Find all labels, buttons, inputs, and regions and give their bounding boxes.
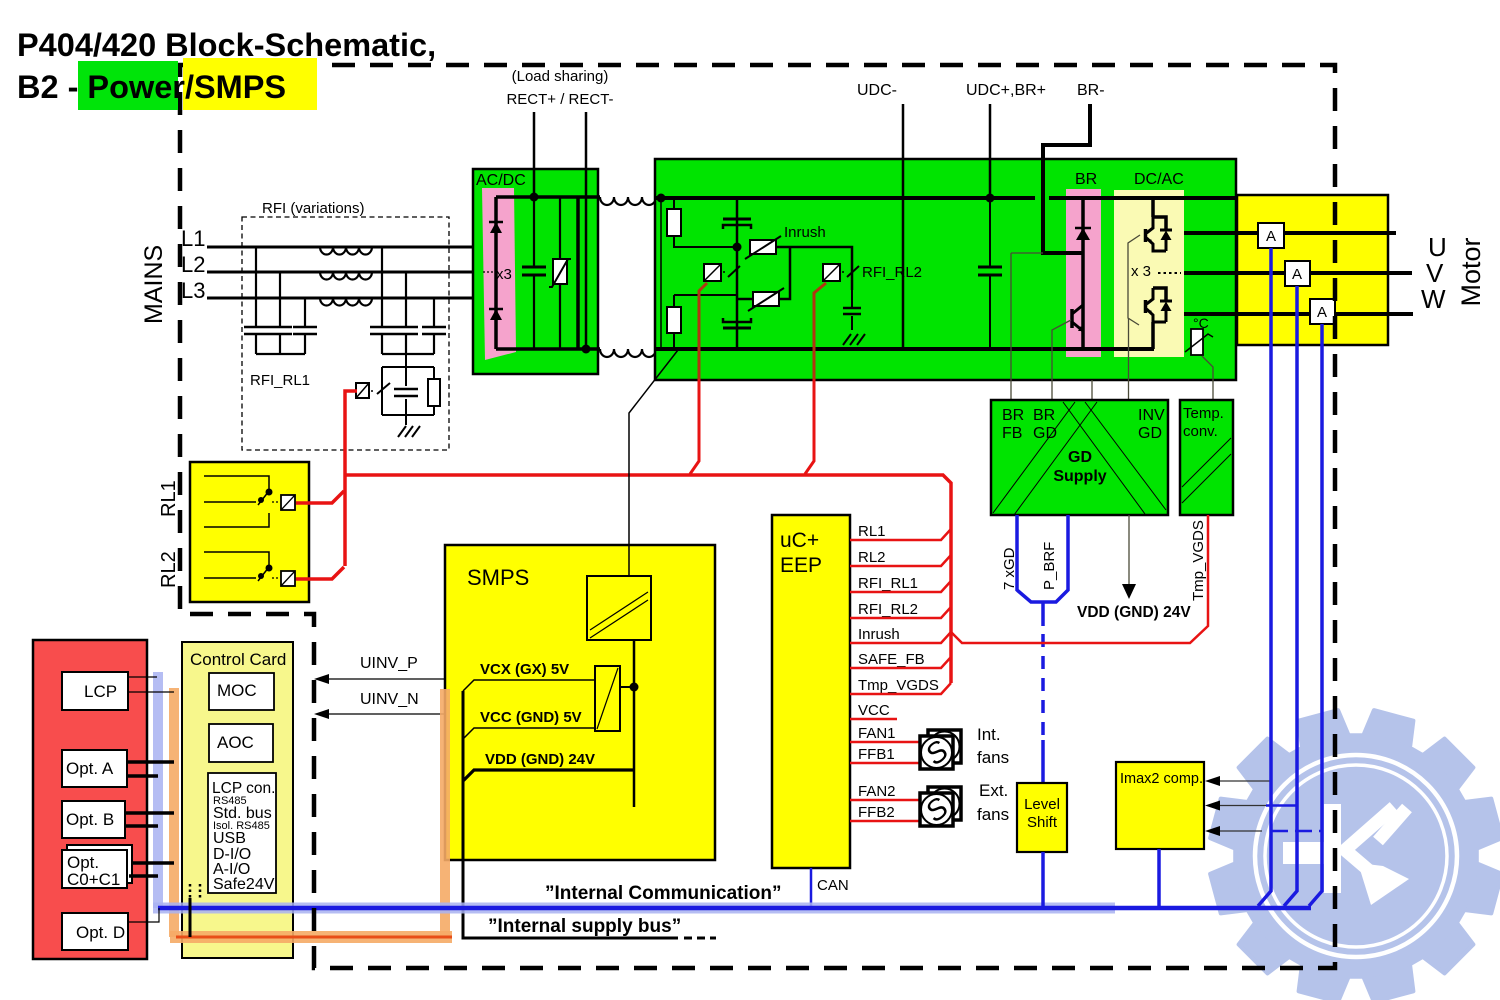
svg-text:B2 - Power/SMPS: B2 - Power/SMPS	[17, 69, 286, 105]
svg-text:Safe24V: Safe24V	[213, 876, 275, 893]
svg-text:uC+: uC+	[780, 529, 819, 552]
svg-text:GD: GD	[1068, 449, 1092, 466]
svg-text:RFI_RL1: RFI_RL1	[250, 372, 310, 389]
svg-text:AC/DC: AC/DC	[476, 172, 526, 189]
svg-text:Shift: Shift	[1027, 814, 1058, 831]
svg-text:VCC: VCC	[858, 702, 890, 719]
svg-text:Opt. B: Opt. B	[66, 810, 114, 829]
svg-text:VCX (GX) 5V: VCX (GX) 5V	[480, 661, 569, 678]
svg-text:AOC: AOC	[217, 733, 254, 752]
svg-text:Control Card: Control Card	[190, 650, 286, 669]
svg-text:C0+C1: C0+C1	[67, 870, 120, 889]
svg-text:EEP: EEP	[780, 554, 822, 577]
svg-text:x 3: x 3	[1131, 263, 1151, 280]
svg-text:FAN2: FAN2	[858, 783, 896, 800]
svg-text:USB: USB	[213, 830, 246, 847]
svg-text:BR-: BR-	[1077, 82, 1105, 99]
svg-text:Supply: Supply	[1053, 468, 1106, 485]
svg-text:L1: L1	[181, 226, 205, 251]
svg-text:GD: GD	[1033, 425, 1057, 442]
svg-text:FFB2: FFB2	[858, 804, 895, 821]
svg-text:A: A	[1317, 304, 1327, 321]
svg-text:SAFE_FB: SAFE_FB	[858, 651, 925, 668]
svg-text:SMPS: SMPS	[467, 565, 529, 590]
svg-text:RL1: RL1	[158, 480, 180, 517]
svg-text:FAN1: FAN1	[858, 725, 896, 742]
svg-text:GD: GD	[1138, 425, 1162, 442]
svg-text:Ext.: Ext.	[979, 781, 1008, 800]
svg-text:A: A	[1292, 266, 1302, 283]
svg-text:RFI_RL1: RFI_RL1	[858, 575, 918, 592]
svg-text:UDC+,BR+: UDC+,BR+	[966, 82, 1046, 99]
svg-text:Opt. D: Opt. D	[76, 923, 125, 942]
svg-text:RL1: RL1	[858, 523, 886, 540]
svg-text:VCC (GND) 5V: VCC (GND) 5V	[480, 709, 582, 726]
svg-text:UINV_N: UINV_N	[360, 691, 419, 708]
svg-text:MAINS: MAINS	[140, 245, 168, 324]
svg-text:FB: FB	[1002, 425, 1022, 442]
svg-text:BR: BR	[1075, 171, 1097, 188]
svg-text:RFI_RL2: RFI_RL2	[858, 601, 918, 618]
svg-text:RL2: RL2	[858, 549, 886, 566]
svg-text:conv.: conv.	[1183, 423, 1218, 440]
svg-text:DC/AC: DC/AC	[1134, 171, 1184, 188]
svg-text:”Internal supply bus”: ”Internal supply bus”	[488, 916, 681, 937]
svg-text:L3: L3	[181, 278, 205, 303]
svg-text:Int.: Int.	[977, 725, 1001, 744]
svg-text:P404/420 Block-Schematic,: P404/420 Block-Schematic,	[17, 27, 436, 63]
svg-text:FFB1: FFB1	[858, 746, 895, 763]
svg-text:BR: BR	[1002, 407, 1024, 424]
svg-text:Tmp_VGDS: Tmp_VGDS	[1190, 520, 1207, 601]
svg-text:MOC: MOC	[217, 681, 257, 700]
svg-text:Inrush: Inrush	[784, 224, 826, 241]
svg-text:Level: Level	[1024, 796, 1060, 813]
svg-text:Inrush: Inrush	[858, 626, 900, 643]
svg-text:x3: x3	[496, 266, 512, 283]
svg-text:LCP: LCP	[84, 682, 117, 701]
svg-text:RL2: RL2	[158, 551, 180, 588]
svg-text:”Internal Communication”: ”Internal Communication”	[545, 883, 781, 904]
svg-text:Opt. A: Opt. A	[66, 759, 114, 778]
svg-text:CAN: CAN	[817, 877, 849, 894]
svg-text:Imax2 comp.: Imax2 comp.	[1120, 771, 1203, 787]
svg-text:INV: INV	[1138, 407, 1165, 424]
svg-text:W: W	[1421, 284, 1446, 314]
svg-text:VDD (GND) 24V: VDD (GND) 24V	[1077, 604, 1191, 621]
svg-text:UINV_P: UINV_P	[360, 655, 418, 672]
svg-text:L2: L2	[181, 252, 205, 277]
svg-text:fans: fans	[977, 748, 1009, 767]
svg-text:RECT+ / RECT-: RECT+ / RECT-	[506, 91, 613, 108]
svg-text:RFI_RL2: RFI_RL2	[862, 264, 922, 281]
svg-text:BR: BR	[1033, 407, 1055, 424]
svg-text:fans: fans	[977, 805, 1009, 824]
svg-text:(Load sharing): (Load sharing)	[512, 68, 609, 85]
svg-text:Motor: Motor	[1456, 237, 1486, 306]
svg-text:P_BRF: P_BRF	[1041, 542, 1058, 590]
svg-text:A: A	[1266, 228, 1276, 245]
svg-text:UDC-: UDC-	[857, 82, 897, 99]
svg-text:VDD (GND) 24V: VDD (GND) 24V	[485, 751, 595, 768]
svg-text:Temp.: Temp.	[1183, 405, 1224, 422]
svg-text:7 xGD: 7 xGD	[1001, 547, 1018, 590]
svg-text:RFI (variations): RFI (variations)	[262, 200, 365, 217]
svg-text:Tmp_VGDS: Tmp_VGDS	[858, 677, 939, 694]
